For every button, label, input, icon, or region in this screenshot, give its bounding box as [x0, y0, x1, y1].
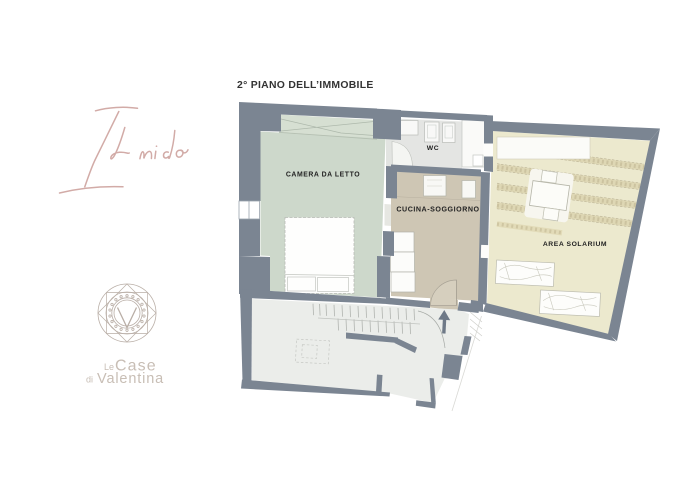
svg-text:CUCINA-SOGGIORNO: CUCINA-SOGGIORNO [396, 206, 479, 214]
svg-text:2° PIANO DELL’IMMOBILE: 2° PIANO DELL’IMMOBILE [237, 80, 374, 91]
svg-text:di: di [86, 375, 93, 385]
svg-text:AREA SOLARIUM: AREA SOLARIUM [543, 241, 607, 248]
svg-text:CAMERA DA LETTO: CAMERA DA LETTO [286, 172, 360, 179]
svg-text:WC: WC [427, 145, 440, 152]
svg-text:Valentina: Valentina [97, 371, 164, 387]
